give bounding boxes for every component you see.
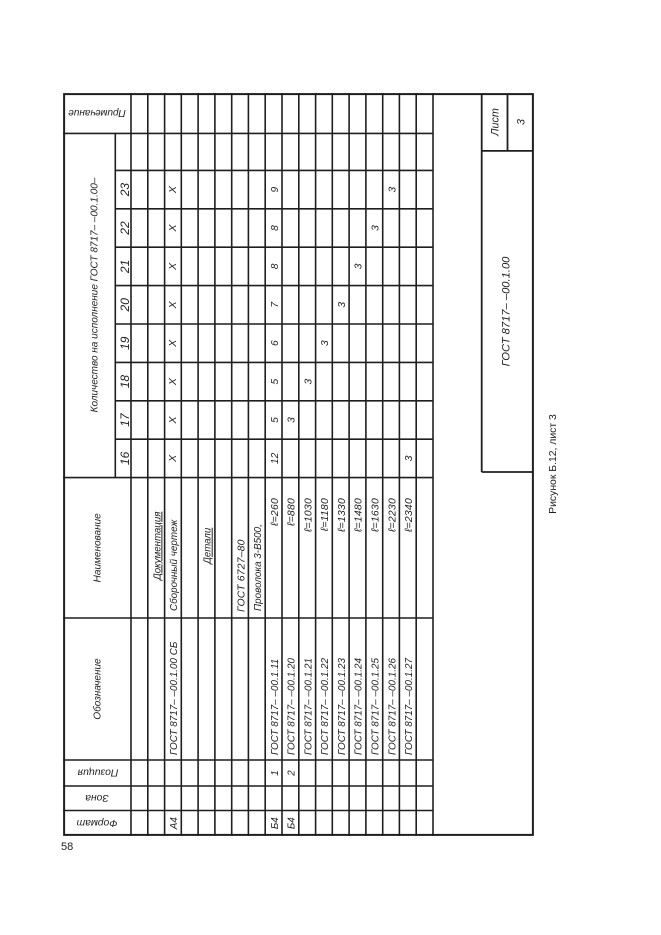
svg-text:ℓ=260: ℓ=260 [270, 498, 281, 527]
svg-text:Документация: Документация [152, 512, 163, 581]
svg-text:Х: Х [167, 300, 179, 309]
svg-text:Формат: Формат [76, 817, 117, 828]
svg-text:Х: Х [167, 185, 179, 194]
svg-text:Х: Х [167, 224, 179, 233]
svg-text:ГОСТ 8717– –00.1.24: ГОСТ 8717– –00.1.24 [354, 658, 365, 755]
svg-text:ГОСТ 8717– –00.1.21: ГОСТ 8717– –00.1.21 [303, 658, 314, 755]
svg-text:9: 9 [270, 186, 281, 192]
svg-text:ГОСТ 8717– –00.1.00: ГОСТ 8717– –00.1.00 [501, 256, 513, 367]
svg-text:8: 8 [270, 263, 281, 269]
svg-text:ГОСТ 8717– –00.1.11: ГОСТ 8717– –00.1.11 [270, 659, 281, 755]
svg-text:ГОСТ 8717– –00.1.23: ГОСТ 8717– –00.1.23 [337, 658, 348, 755]
svg-text:А4: А4 [169, 817, 180, 831]
svg-text:21: 21 [118, 260, 132, 274]
svg-text:1: 1 [270, 770, 281, 775]
svg-text:Количество на исполнение ГОСТ: Количество на исполнение ГОСТ 8717– –00.… [90, 177, 101, 412]
svg-text:Обозначение: Обозначение [92, 658, 104, 720]
svg-text:Лист: Лист [489, 108, 501, 137]
svg-text:Наименование: Наименование [93, 513, 104, 582]
svg-text:5: 5 [270, 417, 281, 423]
svg-text:16: 16 [118, 451, 132, 465]
svg-text:ℓ=1480: ℓ=1480 [354, 498, 365, 533]
svg-text:ℓ=880: ℓ=880 [287, 498, 298, 527]
svg-text:3: 3 [320, 340, 331, 346]
svg-text:3: 3 [354, 263, 365, 269]
svg-text:3: 3 [337, 302, 348, 308]
svg-text:3: 3 [387, 186, 398, 192]
svg-text:Х: Х [167, 377, 179, 386]
svg-text:7: 7 [270, 302, 281, 308]
svg-text:Х: Х [167, 416, 179, 425]
svg-text:ГОСТ 8717– –00.1.27: ГОСТ 8717– –00.1.27 [404, 658, 415, 755]
svg-text:19: 19 [118, 336, 132, 350]
svg-text:23: 23 [118, 183, 132, 198]
svg-text:Сборочный чертеж: Сборочный чертеж [169, 519, 180, 611]
svg-text:ГОСТ 8717– –00.1.25: ГОСТ 8717– –00.1.25 [371, 658, 382, 755]
svg-text:ГОСТ 8717– –00.1.26: ГОСТ 8717– –00.1.26 [387, 658, 398, 755]
svg-text:Х: Х [167, 339, 179, 348]
svg-text:8: 8 [270, 225, 281, 231]
svg-text:22: 22 [118, 221, 132, 236]
svg-text:6: 6 [270, 340, 281, 346]
svg-text:3: 3 [287, 417, 298, 423]
svg-text:3: 3 [303, 378, 314, 384]
svg-text:Б4: Б4 [270, 817, 281, 829]
svg-text:Рисунок Б.12, лист 3: Рисунок Б.12, лист 3 [548, 414, 558, 514]
svg-text:ℓ=2230: ℓ=2230 [387, 498, 398, 533]
svg-text:17: 17 [118, 412, 132, 427]
svg-text:12: 12 [270, 452, 281, 464]
svg-text:Позиция: Позиция [77, 767, 118, 778]
svg-text:ℓ=1330: ℓ=1330 [337, 498, 348, 533]
svg-text:ℓ=2340: ℓ=2340 [404, 498, 415, 533]
svg-text:ГОСТ 8717– –00.1.00 СБ: ГОСТ 8717– –00.1.00 СБ [169, 641, 180, 755]
svg-text:3: 3 [371, 225, 382, 231]
svg-text:3: 3 [516, 119, 528, 125]
svg-text:ГОСТ 8717– –00.1.22: ГОСТ 8717– –00.1.22 [320, 658, 331, 755]
svg-text:Зона: Зона [85, 792, 109, 803]
svg-text:3: 3 [404, 455, 415, 461]
svg-text:20: 20 [118, 298, 132, 313]
svg-text:ℓ=1180: ℓ=1180 [320, 498, 331, 532]
svg-text:ГОСТ 8717– –00.1.20: ГОСТ 8717– –00.1.20 [287, 658, 298, 755]
svg-text:Х: Х [167, 454, 179, 463]
svg-text:Детали: Детали [203, 527, 214, 565]
svg-text:2: 2 [287, 770, 298, 777]
svg-text:Примечание: Примечание [68, 107, 126, 118]
svg-text:Проволока 3-В500,: Проволока 3-В500, [253, 524, 264, 611]
svg-text:18: 18 [118, 375, 132, 389]
svg-text:ℓ=1630: ℓ=1630 [371, 498, 382, 533]
svg-text:ГОСТ 6727–80: ГОСТ 6727–80 [236, 539, 247, 612]
svg-text:Б4: Б4 [287, 817, 298, 829]
svg-text:Х: Х [167, 262, 179, 271]
svg-text:5: 5 [270, 378, 281, 384]
svg-text:ℓ=1030: ℓ=1030 [303, 498, 314, 533]
